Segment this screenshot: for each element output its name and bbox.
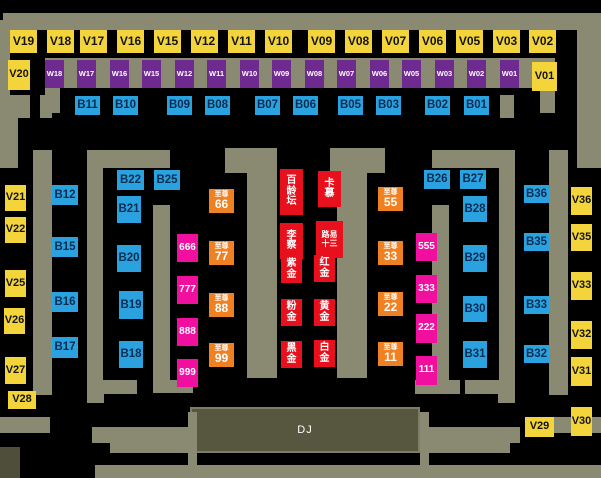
table-至尊33[interactable]: 至尊33 <box>378 241 403 265</box>
table-V32[interactable]: V32 <box>571 321 592 349</box>
table-黑金[interactable]: 黑金 <box>281 341 302 368</box>
wall <box>549 150 568 395</box>
table-路易十三[interactable]: 路易十三 <box>316 221 343 258</box>
table-B16[interactable]: B16 <box>52 292 78 312</box>
table-V18[interactable]: V18 <box>47 30 74 53</box>
table-W10[interactable]: W10 <box>240 60 259 88</box>
table-label-line: 察 <box>287 241 297 252</box>
wall <box>498 380 515 403</box>
table-label-number: 99 <box>215 352 228 365</box>
table-W06[interactable]: W06 <box>370 60 389 88</box>
table-李察[interactable]: 李察 <box>280 223 303 259</box>
table-B20[interactable]: B20 <box>117 245 141 272</box>
table-B07[interactable]: B07 <box>255 96 280 115</box>
table-V29[interactable]: V29 <box>525 417 554 437</box>
table-V06[interactable]: V06 <box>419 30 446 53</box>
table-label-number: 55 <box>384 196 397 209</box>
table-B29[interactable]: B29 <box>463 245 487 272</box>
wall <box>87 168 103 380</box>
table-W02[interactable]: W02 <box>467 60 486 88</box>
wall <box>153 205 170 380</box>
table-V01[interactable]: V01 <box>532 62 557 91</box>
dj-booth: DJ <box>190 407 420 453</box>
table-至尊66[interactable]: 至尊66 <box>209 189 234 213</box>
wall <box>45 88 60 113</box>
table-label-line: 红 <box>320 258 330 269</box>
wall <box>87 150 170 168</box>
table-B03[interactable]: B03 <box>376 96 401 115</box>
table-V35[interactable]: V35 <box>571 224 592 251</box>
table-W18[interactable]: W18 <box>45 60 64 88</box>
table-label-line: 金 <box>320 354 330 365</box>
table-V27[interactable]: V27 <box>5 357 26 384</box>
wall <box>225 148 277 173</box>
wall <box>92 427 188 443</box>
table-B12[interactable]: B12 <box>52 185 78 205</box>
table-V19[interactable]: V19 <box>10 30 37 53</box>
table-333[interactable]: 333 <box>416 275 437 303</box>
wall <box>247 173 277 378</box>
table-label-number: 22 <box>384 301 397 314</box>
table-红金[interactable]: 红金 <box>314 255 335 282</box>
table-B26[interactable]: B26 <box>424 170 450 189</box>
table-label-line: 紫 <box>287 259 297 270</box>
table-label-line: 金 <box>287 270 297 281</box>
table-V11[interactable]: V11 <box>228 30 255 53</box>
table-V36[interactable]: V36 <box>571 187 592 215</box>
table-W08[interactable]: W08 <box>305 60 324 88</box>
wall <box>3 13 597 30</box>
table-B18[interactable]: B18 <box>119 341 143 368</box>
wall <box>0 95 30 118</box>
table-label-line: 金 <box>320 313 330 324</box>
table-B25[interactable]: B25 <box>154 170 180 190</box>
wall <box>33 150 52 395</box>
table-V20[interactable]: V20 <box>8 60 30 90</box>
table-V03[interactable]: V03 <box>493 30 520 53</box>
table-label-line: 白 <box>320 343 330 354</box>
table-B05[interactable]: B05 <box>338 96 363 115</box>
table-V07[interactable]: V07 <box>382 30 409 53</box>
table-V26[interactable]: V26 <box>4 308 25 334</box>
table-粉金[interactable]: 粉金 <box>281 299 302 326</box>
wall <box>500 95 514 118</box>
wall <box>0 417 50 433</box>
wall <box>337 173 367 378</box>
table-V16[interactable]: V16 <box>117 30 144 53</box>
table-V08[interactable]: V08 <box>345 30 372 53</box>
table-B36[interactable]: B36 <box>524 185 549 203</box>
wall <box>432 150 515 168</box>
table-label-number: 77 <box>215 250 228 263</box>
table-B30[interactable]: B30 <box>463 296 487 322</box>
table-label-line: 黑 <box>287 344 297 355</box>
table-至尊22[interactable]: 至尊22 <box>378 292 403 316</box>
table-至尊88[interactable]: 至尊88 <box>209 293 234 317</box>
table-label-line: 粉 <box>287 302 297 313</box>
table-888[interactable]: 888 <box>177 318 198 346</box>
table-555[interactable]: 555 <box>416 233 437 261</box>
table-至尊55[interactable]: 至尊55 <box>378 187 403 211</box>
table-B35[interactable]: B35 <box>524 233 549 251</box>
table-至尊99[interactable]: 至尊99 <box>209 343 234 367</box>
table-V10[interactable]: V10 <box>265 30 292 53</box>
table-W16[interactable]: W16 <box>110 60 129 88</box>
table-V33[interactable]: V33 <box>571 272 592 300</box>
table-卡慕[interactable]: 卡慕 <box>318 171 341 207</box>
table-B10[interactable]: B10 <box>113 96 138 115</box>
table-B28[interactable]: B28 <box>463 196 487 222</box>
table-百龄坛[interactable]: 百龄坛 <box>280 169 303 215</box>
table-label-line: 金 <box>320 269 330 280</box>
table-V17[interactable]: V17 <box>80 30 107 53</box>
table-label-line: 慕 <box>325 189 335 200</box>
table-黄金[interactable]: 黄金 <box>314 299 335 326</box>
table-V30[interactable]: V30 <box>571 407 592 436</box>
table-至尊11[interactable]: 至尊11 <box>378 342 403 366</box>
table-label-line: 坛 <box>287 197 297 208</box>
table-B22[interactable]: B22 <box>117 170 144 190</box>
table-W03[interactable]: W03 <box>435 60 454 88</box>
table-B02[interactable]: B02 <box>425 96 450 115</box>
table-V31[interactable]: V31 <box>571 357 592 386</box>
table-B19[interactable]: B19 <box>119 291 143 319</box>
table-B09[interactable]: B09 <box>167 96 192 115</box>
table-W12[interactable]: W12 <box>175 60 194 88</box>
table-V02[interactable]: V02 <box>529 30 556 53</box>
table-B17[interactable]: B17 <box>52 337 78 358</box>
table-label-line: 黄 <box>320 302 330 313</box>
wall <box>420 427 520 443</box>
table-label-number: 88 <box>215 302 228 315</box>
table-B33[interactable]: B33 <box>524 296 549 314</box>
table-V12[interactable]: V12 <box>191 30 218 53</box>
table-B06[interactable]: B06 <box>293 96 318 115</box>
table-B27[interactable]: B27 <box>460 170 486 189</box>
table-label-number: 11 <box>384 351 397 364</box>
table-W15[interactable]: W15 <box>142 60 161 88</box>
table-999[interactable]: 999 <box>177 359 198 387</box>
table-W07[interactable]: W07 <box>337 60 356 88</box>
table-V05[interactable]: V05 <box>456 30 483 53</box>
table-白金[interactable]: 白金 <box>314 340 335 367</box>
table-label-number: 33 <box>384 250 397 263</box>
wall <box>188 412 197 465</box>
table-222[interactable]: 222 <box>416 314 437 343</box>
table-B15[interactable]: B15 <box>52 237 78 257</box>
table-B32[interactable]: B32 <box>524 345 549 363</box>
wall <box>420 412 429 465</box>
table-紫金[interactable]: 紫金 <box>281 256 302 283</box>
table-111[interactable]: 111 <box>416 356 437 385</box>
table-B31[interactable]: B31 <box>463 341 487 368</box>
table-W01[interactable]: W01 <box>500 60 519 88</box>
table-label-line: 金 <box>287 355 297 366</box>
table-V22[interactable]: V22 <box>5 217 26 243</box>
table-W09[interactable]: W09 <box>272 60 291 88</box>
table-label-number: 66 <box>215 198 228 211</box>
table-V28[interactable]: V28 <box>8 391 36 409</box>
table-V09[interactable]: V09 <box>308 30 335 53</box>
wall <box>577 13 601 168</box>
wall <box>110 443 188 453</box>
wall-dark <box>0 447 20 478</box>
table-label-line: 金 <box>287 313 297 324</box>
table-W11[interactable]: W11 <box>207 60 226 88</box>
table-B21[interactable]: B21 <box>117 196 141 223</box>
table-B11[interactable]: B11 <box>75 96 100 115</box>
wall <box>87 380 104 403</box>
table-666[interactable]: 666 <box>177 234 198 262</box>
table-W05[interactable]: W05 <box>402 60 421 88</box>
wall <box>0 150 18 168</box>
table-B01[interactable]: B01 <box>464 96 489 115</box>
wall <box>420 443 510 453</box>
table-B08[interactable]: B08 <box>205 96 230 115</box>
wall <box>499 168 515 380</box>
wall <box>330 148 385 173</box>
table-label-line: 十三 <box>322 240 338 248</box>
table-V15[interactable]: V15 <box>154 30 181 53</box>
floor-plan: DJ V19V18V17V16V15V12V11V10V09V08V07V06V… <box>0 0 601 478</box>
table-W17[interactable]: W17 <box>77 60 96 88</box>
table-V21[interactable]: V21 <box>5 185 26 211</box>
wall <box>540 88 555 113</box>
table-V25[interactable]: V25 <box>5 270 26 297</box>
table-至尊77[interactable]: 至尊77 <box>209 241 234 265</box>
table-777[interactable]: 777 <box>177 276 198 304</box>
wall <box>95 465 601 478</box>
